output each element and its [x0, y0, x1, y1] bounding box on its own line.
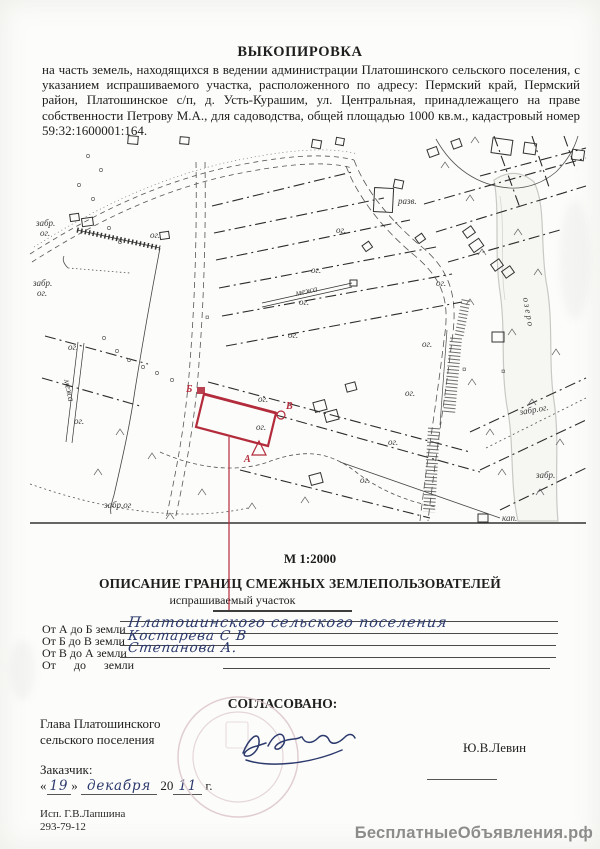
map-label: ог.	[311, 265, 321, 275]
vertex-v-marker	[277, 411, 285, 419]
map-label: ог.	[256, 422, 266, 432]
map-label: ог.	[68, 342, 78, 352]
approver-name: Ю.В.Левин	[463, 740, 526, 756]
vertex-v-label: В	[285, 401, 293, 412]
boundary-row-value: Степанова А.	[127, 640, 238, 656]
map-label: ог.	[360, 475, 370, 485]
executor-name: Исп. Г.В.Лапшина	[40, 808, 125, 820]
parcel-callout-label: испрашиваемый участок	[0, 593, 465, 608]
map-scale-label: М 1:2000	[0, 551, 600, 567]
approver-role-line1: Глава Платошинского	[40, 716, 160, 732]
map-label: забр.	[32, 278, 52, 288]
document-title: ВЫКОПИРОВКА	[0, 44, 600, 61]
boundary-row-line	[120, 657, 556, 658]
boundary-row: От до земли	[42, 656, 134, 674]
date-line: «19» декабря 2011 г.	[40, 778, 213, 794]
boundary-row-label: От до земли	[42, 658, 134, 672]
map-label: ог.	[422, 339, 432, 349]
watermark-text: БесплатныеОбъявления.рф	[355, 824, 593, 843]
date-day-handwritten: 19	[47, 778, 72, 795]
map-label: забр.	[535, 470, 555, 480]
scanned-document-page: ВЫКОПИРОВКА на часть земель, находящихся…	[0, 0, 600, 849]
vertex-a-marker	[252, 441, 266, 455]
round-stamp	[178, 697, 298, 817]
ravine-hatching	[429, 300, 466, 512]
section-title: ОПИСАНИЕ ГРАНИЦ СМЕЖНЫХ ЗЕМЛЕПОЛЬЗОВАТЕЛ…	[0, 576, 600, 592]
year-suffix: г.	[205, 778, 212, 793]
map-label: ог.	[388, 437, 398, 447]
approver-signature-line	[427, 779, 497, 780]
approver-signature	[243, 734, 355, 764]
map-label: ог.	[436, 278, 446, 288]
quote-open: «	[40, 778, 47, 793]
date-year-handwritten: 11	[173, 778, 202, 795]
vertex-b-label: Б	[185, 384, 193, 395]
intro-paragraph: на часть земель, находящихся в ведении а…	[42, 62, 580, 138]
map-label: забр.ог.	[518, 402, 550, 417]
roads	[30, 136, 578, 521]
map-label: озеро	[521, 297, 536, 329]
boundary-line	[340, 462, 500, 518]
vertex-a-label: А	[243, 454, 251, 465]
dotted-boundary	[486, 398, 586, 448]
boundary-row-extra-line	[223, 668, 550, 669]
map-labels: забр.ог.забр.ог.ог.разв.межамежаозероог.…	[32, 196, 555, 523]
map-label: ог.	[299, 297, 309, 307]
map-label: ог.	[288, 330, 298, 340]
map-label: кап.	[502, 513, 517, 523]
year-prefix: 20	[160, 778, 173, 793]
map-label: разв.	[397, 196, 417, 206]
scan-smudge	[560, 200, 590, 320]
map-label: забр.ог	[103, 500, 132, 510]
map-label: ог.	[336, 225, 346, 235]
map-label: ог.	[74, 416, 84, 426]
map-label: межа	[293, 283, 318, 298]
lake-shape	[494, 174, 558, 522]
map-label: забр.	[35, 218, 55, 228]
vertex-b-marker	[197, 387, 205, 394]
vegetation-symbols	[77, 137, 564, 519]
customer-label: Заказчик:	[40, 762, 92, 778]
approved-heading: СОГЛАСОВАНО:	[0, 696, 565, 712]
parcel-boundary-lines	[42, 136, 586, 518]
scan-smudge	[10, 640, 35, 700]
map-label: ог.	[40, 228, 50, 238]
executor-phone: 293-79-12	[40, 821, 86, 833]
mezha-strips	[66, 280, 357, 443]
date-month-handwritten: декабря	[81, 778, 157, 795]
map-label: ог.	[37, 288, 47, 298]
buildings	[70, 136, 585, 522]
map-label: ог.	[405, 388, 415, 398]
map-label: ог.	[150, 230, 160, 240]
fence-zigzag	[77, 230, 160, 514]
map-label: межа	[62, 377, 77, 402]
map-label: ог.	[258, 394, 268, 404]
approver-role-line2: сельского поселения	[40, 732, 154, 748]
quote-close: »	[71, 778, 78, 793]
